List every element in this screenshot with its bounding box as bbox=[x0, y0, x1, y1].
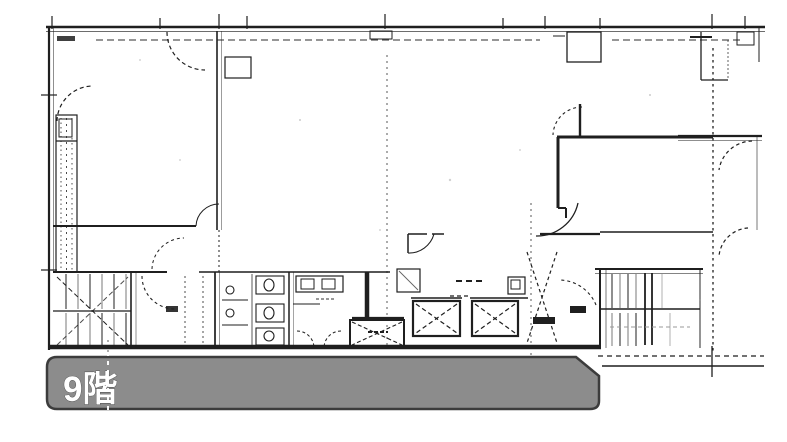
elevator-shaft-2 bbox=[470, 298, 520, 336]
door-arc bbox=[553, 107, 582, 135]
door-arc bbox=[719, 228, 748, 256]
door-arc bbox=[196, 204, 219, 226]
sink-counter bbox=[296, 276, 343, 292]
door-arc bbox=[142, 276, 175, 309]
sink-basin bbox=[301, 279, 314, 289]
exterior-doors-right bbox=[719, 141, 752, 256]
floor-label: 9階 bbox=[63, 370, 117, 409]
stair-right bbox=[559, 269, 703, 348]
toilet-fixture bbox=[264, 307, 274, 319]
scanned-floor-plan-page: 9階 bbox=[0, 0, 787, 442]
sink-basin bbox=[322, 279, 335, 289]
room-top-left bbox=[53, 31, 251, 269]
top-wall-openings bbox=[57, 31, 754, 80]
floor-banner-shape bbox=[47, 357, 599, 409]
toilet-fixture bbox=[264, 331, 274, 341]
duct-shaft bbox=[350, 272, 404, 347]
toilet-area bbox=[215, 272, 343, 348]
door-arc bbox=[57, 86, 92, 121]
door-arc bbox=[559, 280, 596, 305]
toilet-fixture bbox=[264, 279, 274, 291]
urinal-fixture bbox=[226, 286, 234, 294]
room-right bbox=[536, 104, 713, 236]
pipe-shaft bbox=[56, 115, 77, 272]
stair-left bbox=[53, 272, 136, 348]
door-arc bbox=[167, 32, 205, 70]
floor-plan-drawing: 9階 bbox=[0, 0, 787, 442]
core-mid-fixtures bbox=[397, 234, 525, 296]
urinal-fixture bbox=[226, 309, 234, 317]
elevator-shaft-1 bbox=[411, 298, 462, 336]
floor-banner: 9階 bbox=[47, 340, 599, 414]
scan-noise bbox=[139, 59, 701, 301]
door-arc bbox=[408, 234, 434, 253]
outer-walls bbox=[46, 27, 765, 377]
door-arc bbox=[152, 238, 184, 269]
utility-shaft bbox=[520, 252, 557, 343]
core-corridor-walls bbox=[53, 272, 390, 345]
door-arc bbox=[719, 141, 752, 170]
